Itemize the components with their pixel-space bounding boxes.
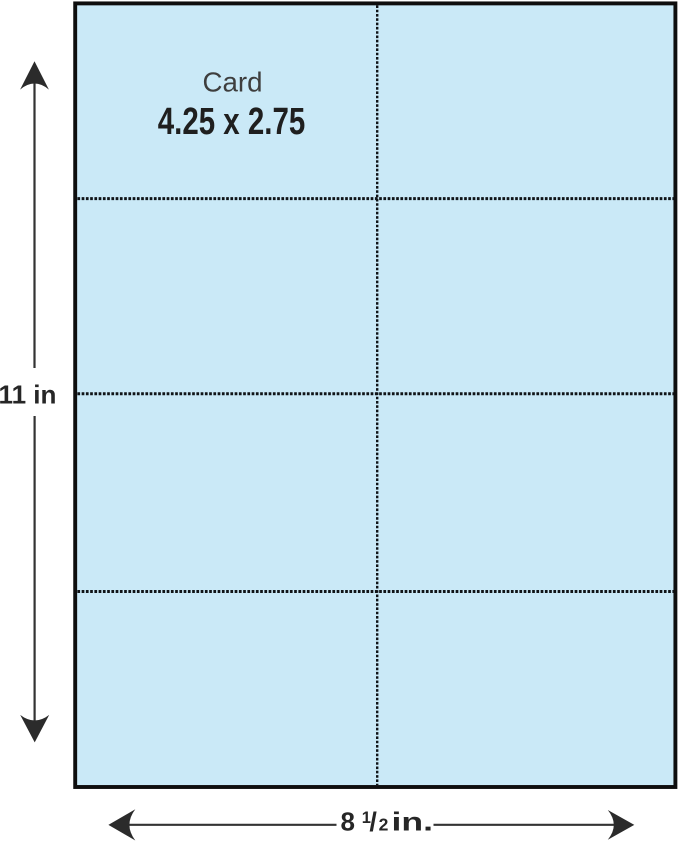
svg-text:4.25 x 2.75: 4.25 x 2.75: [158, 101, 306, 143]
svg-text:11 in: 11 in: [0, 379, 56, 409]
svg-text:Card: Card: [203, 66, 263, 97]
svg-text:2: 2: [379, 815, 389, 835]
svg-text:/: /: [369, 807, 377, 837]
svg-text:8: 8: [341, 807, 355, 837]
svg-text:in.: in.: [392, 807, 434, 837]
